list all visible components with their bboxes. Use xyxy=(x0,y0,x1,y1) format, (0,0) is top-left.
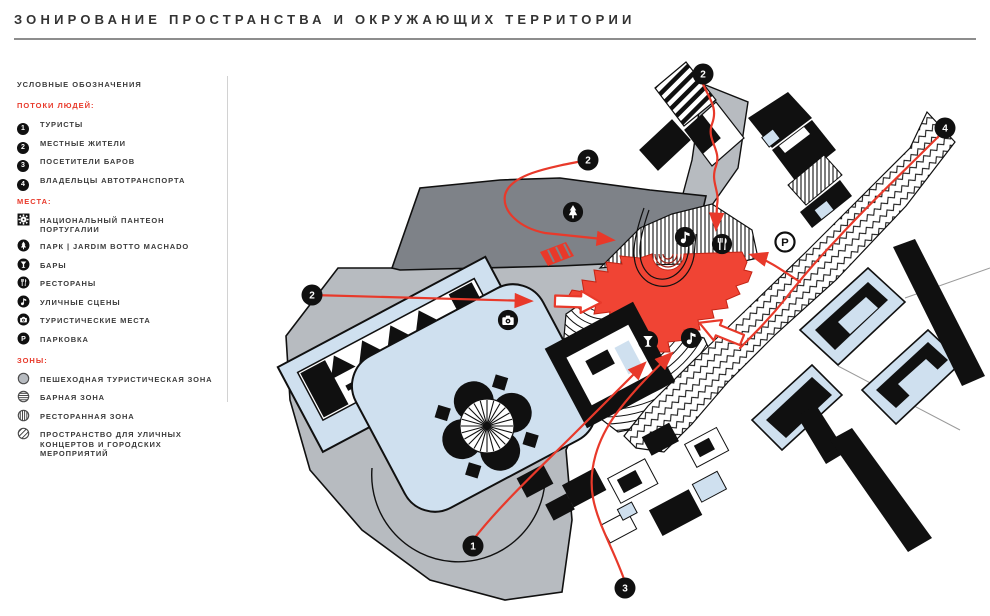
buildings-cluster-topright xyxy=(748,92,852,228)
pantheon-dome xyxy=(460,399,514,453)
svg-text:4: 4 xyxy=(942,124,948,135)
music-icon xyxy=(681,328,701,348)
flow-marker-3: 3 xyxy=(615,578,636,599)
parking-icon xyxy=(775,232,794,251)
svg-text:1: 1 xyxy=(470,542,476,553)
music-icon xyxy=(675,227,695,247)
svg-text:3: 3 xyxy=(622,584,628,595)
svg-text:2: 2 xyxy=(309,291,315,302)
restaurant-icon xyxy=(712,234,732,254)
zoning-map: 242213 xyxy=(0,0,990,616)
flow-marker-4: 4 xyxy=(935,118,956,139)
flow-marker-2: 2 xyxy=(693,64,714,85)
svg-text:2: 2 xyxy=(700,70,706,81)
park-icon xyxy=(563,202,583,222)
camera-icon xyxy=(498,310,518,330)
bar-icon xyxy=(638,331,658,351)
flow-marker-1: 1 xyxy=(463,536,484,557)
svg-text:2: 2 xyxy=(585,156,591,167)
flow-marker-2: 2 xyxy=(302,285,323,306)
flow-marker-2: 2 xyxy=(578,150,599,171)
